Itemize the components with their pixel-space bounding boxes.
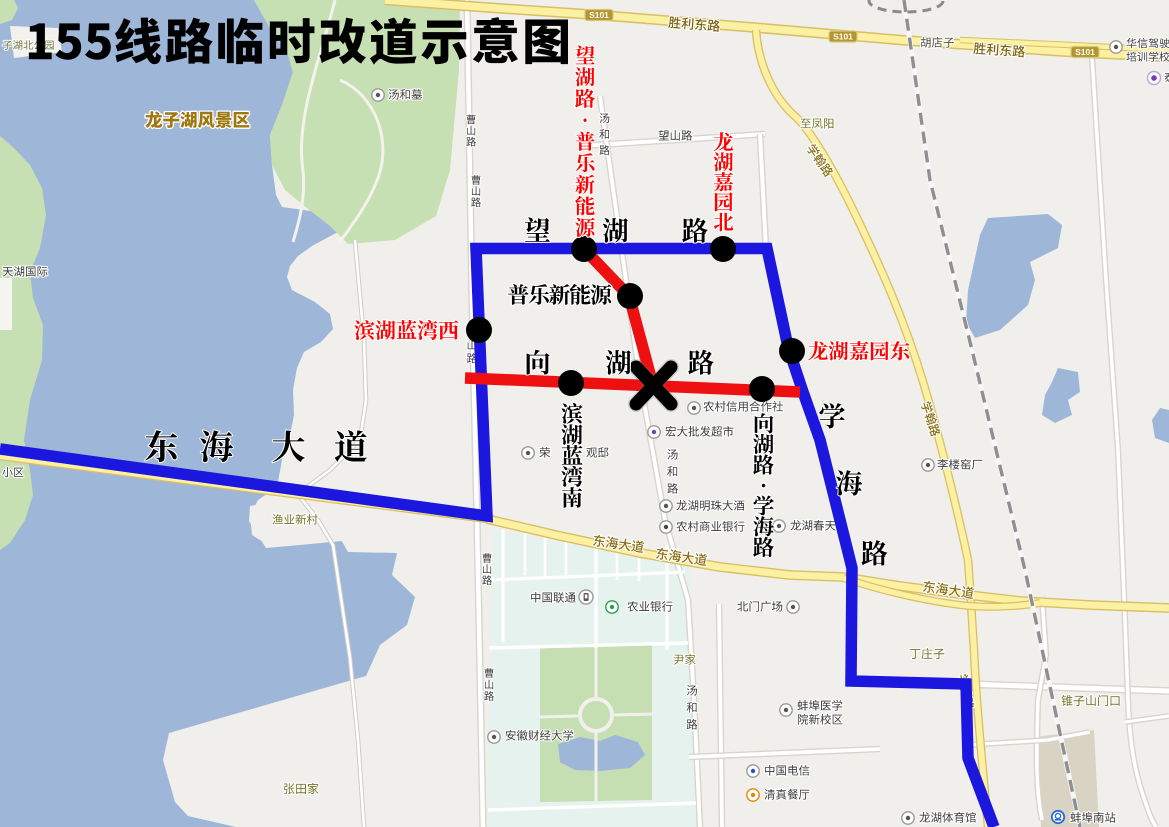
svg-text:S101: S101 [833,32,853,42]
svg-text:S101: S101 [589,10,609,20]
svg-text:S101: S101 [1075,47,1095,57]
